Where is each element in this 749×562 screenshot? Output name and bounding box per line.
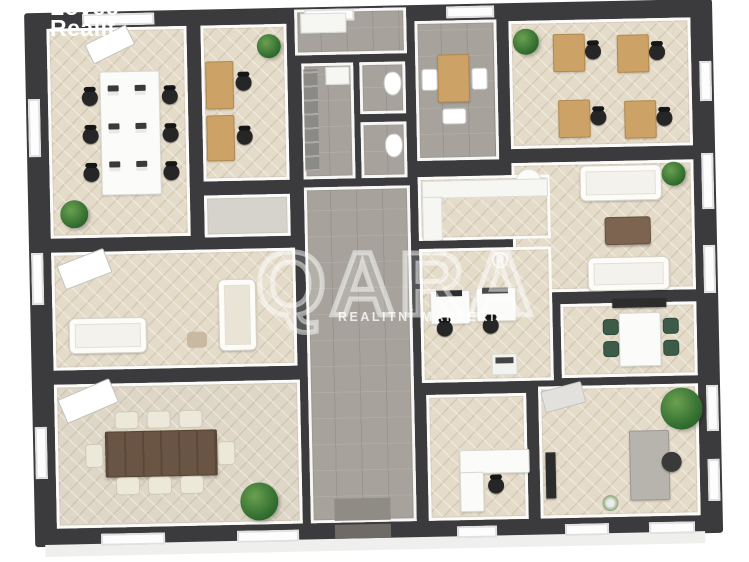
watermark-subtitle: REALITNÍ MAKLÉŘI [338,310,496,324]
pouf [187,332,207,348]
stool [442,108,466,124]
laptop [136,161,147,167]
cream-chair [180,476,204,494]
wood-desk [558,99,591,138]
cream-chair [148,476,172,494]
wood-desk [206,115,235,162]
green-chair [603,319,619,335]
wood-desk [553,34,586,73]
room-hall-small [204,194,291,238]
cream-chair [217,441,235,465]
wood-desk [617,34,650,73]
window [706,385,719,431]
agency-logo-line2: Realit [50,18,119,39]
entry-bench [300,13,346,34]
wall-screen [612,298,666,308]
board-table [105,429,218,477]
green-chair [603,341,619,357]
cream-sofa [68,317,147,355]
window [699,61,712,101]
window [35,427,48,479]
laptop [108,123,119,129]
window [701,153,714,209]
tv-panel [545,452,556,498]
window [457,525,497,538]
wood-desk [205,61,234,110]
white-chair [471,68,487,90]
window [703,245,716,293]
window [649,521,695,534]
cream-chair [85,444,103,468]
window [101,532,165,545]
cream-chair [146,410,170,428]
window [565,523,609,536]
l-desk-side [460,472,485,512]
white-chair [421,69,437,91]
window [237,530,299,543]
green-chair [663,340,679,356]
window [446,5,494,18]
cream-chair [178,410,202,428]
meeting-table [618,312,661,367]
beige-sofa [218,278,257,351]
printer-stand [491,353,517,376]
agency-logo: Lovec Realit [50,0,119,39]
white-sofa [587,256,670,292]
laptop [109,161,120,167]
doormat [334,498,390,521]
l-desk-top [459,449,529,474]
coffee-table [604,216,651,245]
window [708,459,721,501]
window [28,99,41,157]
reception-table [437,54,470,103]
laptop [135,85,146,91]
white-sofa [579,164,662,202]
wood-desk [624,100,657,139]
floor-plan-render: Lovec Realit QARA ® REALITNÍ MAKLÉŘI [0,0,749,562]
laptop [135,123,146,129]
washbasin [325,66,349,84]
cream-chair [114,411,138,429]
watermark-registered-mark: ® [492,248,508,274]
window [31,253,44,305]
back-door [335,524,391,539]
laptop [108,85,119,91]
green-chair [663,318,679,334]
utility-shelving [303,69,319,171]
cream-chair [116,477,140,495]
